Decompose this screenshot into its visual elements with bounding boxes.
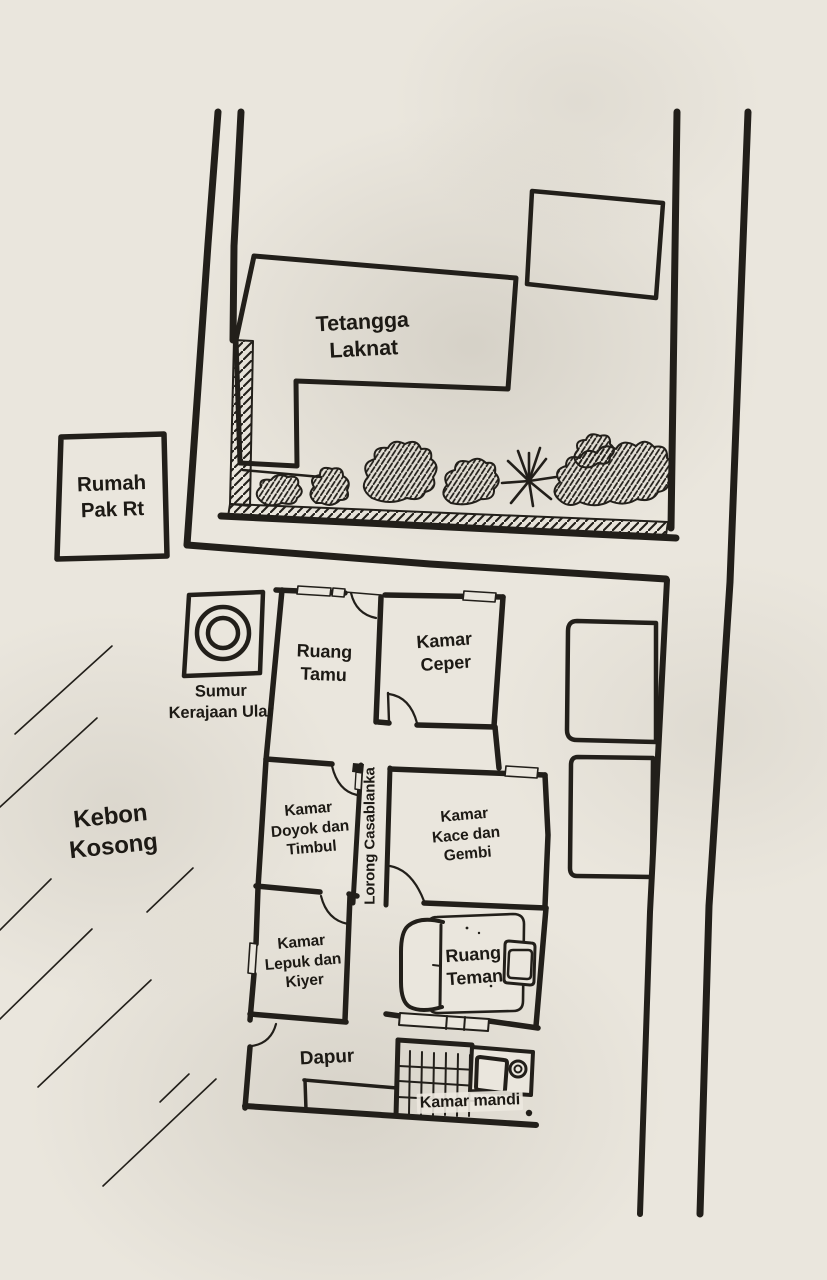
bush-icon <box>310 468 348 505</box>
floor-plan-canvas: Tetangga Laknat Rumah Pak Rt Sumur Keraj… <box>0 0 827 1280</box>
label-kamar-ceper: Kamar Ceper <box>416 627 475 676</box>
bush-icon <box>364 442 437 502</box>
garden-hatch-lines <box>0 646 216 1186</box>
neighbor-house-outline <box>236 256 516 477</box>
window-icon <box>505 766 538 778</box>
door-arc <box>389 694 417 723</box>
door-arc <box>321 896 348 924</box>
kitchen-counter <box>304 1080 397 1110</box>
window-icon <box>248 943 257 974</box>
label-sumur-kerajaan-ular: Sumur Kerajaan Ular <box>168 680 274 723</box>
label-kamar-doyok-timbul: Kamar Doyok dan Timbul <box>268 796 351 861</box>
label-kamar-mandi: Kamar mandi <box>417 1090 524 1114</box>
storage-shed-outline <box>527 191 663 298</box>
label-tetangga-laknat: Tetangga Laknat <box>315 307 411 366</box>
label-dapur: Dapur <box>299 1045 355 1072</box>
window-icon <box>399 1013 489 1031</box>
spiky-plant-icon <box>502 448 556 506</box>
bush-icon <box>443 459 498 505</box>
bush-icon <box>554 442 672 506</box>
washer-icon <box>510 1061 526 1077</box>
label-kamar-kace-gembi: Kamar Kace dan Gembi <box>430 803 503 867</box>
label-rumah-pak-rt: Rumah Pak Rt <box>77 470 148 524</box>
map-linework <box>0 0 827 1280</box>
well-icon <box>184 592 263 676</box>
window-icon <box>332 588 345 597</box>
label-ruang-tamu: Ruang Tamu <box>295 639 352 686</box>
window-icon <box>463 591 496 602</box>
boundary-line <box>187 545 666 579</box>
window-icon <box>297 586 331 596</box>
label-kebon-kosong: Kebon Kosong <box>65 797 160 866</box>
bushes <box>257 434 673 506</box>
drain-dot <box>526 1110 532 1116</box>
side-yard-rects <box>567 621 656 877</box>
label-ruang-teman: Ruang Teman <box>444 941 503 990</box>
bush-icon <box>257 475 302 505</box>
toilet-icon <box>476 1057 507 1093</box>
door-arc <box>351 593 376 618</box>
label-kamar-lepuk-kiyer: Kamar Lepuk dan Kiyer <box>262 929 343 994</box>
door-arc <box>390 866 424 901</box>
door-arc <box>252 1024 276 1046</box>
label-lorong-casablanka: Lorong Casablanka <box>362 767 381 905</box>
